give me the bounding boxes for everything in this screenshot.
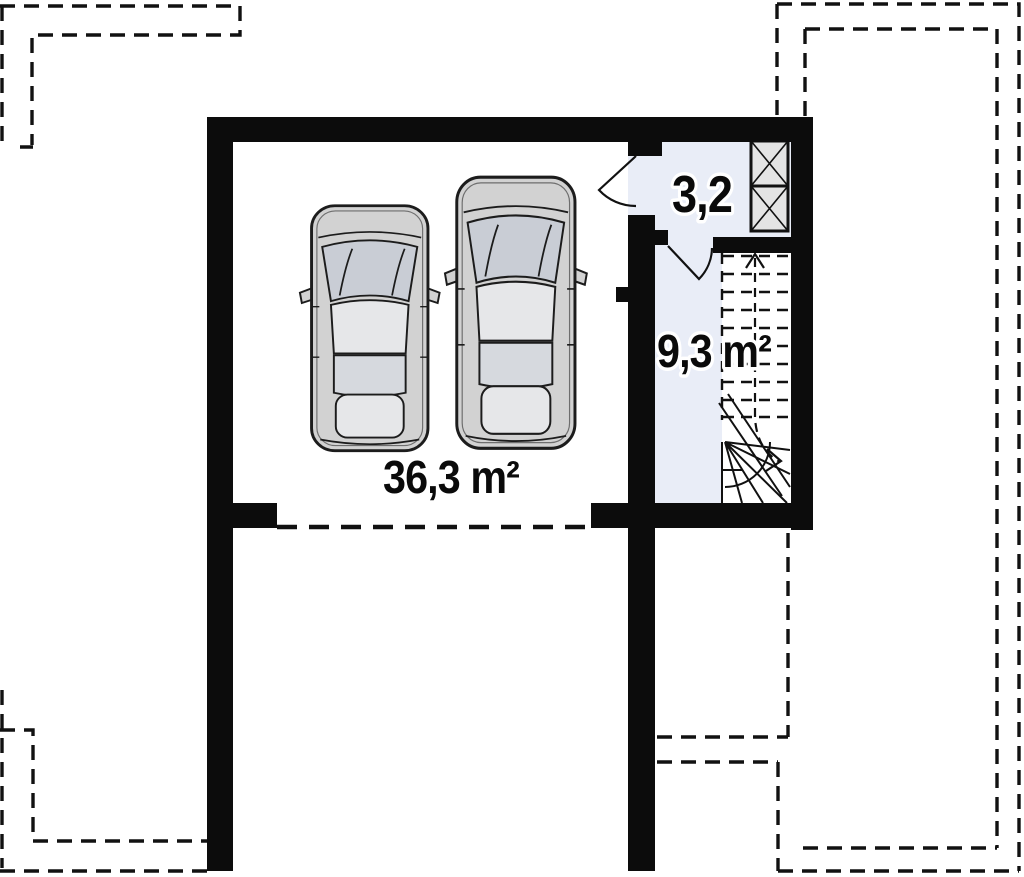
floor-plan-canvas: 36,3 m² 3,2 9,3 m² <box>0 0 1024 877</box>
entry-area-label: 3,2 <box>672 166 732 224</box>
stair-hall-area-label: 9,3 m² <box>657 325 772 377</box>
outline-bottom-left <box>0 690 207 871</box>
outline-top-left <box>0 6 240 150</box>
floor-plan-svg: 36,3 m² 3,2 9,3 m² <box>0 0 1024 877</box>
garage-area-label: 36,3 m² <box>383 451 520 503</box>
car-icon <box>300 206 440 451</box>
outline-bottom-right <box>657 533 1019 871</box>
chimney-icon <box>751 141 788 231</box>
outline-top-right <box>777 4 1019 871</box>
car-icon <box>445 177 587 448</box>
